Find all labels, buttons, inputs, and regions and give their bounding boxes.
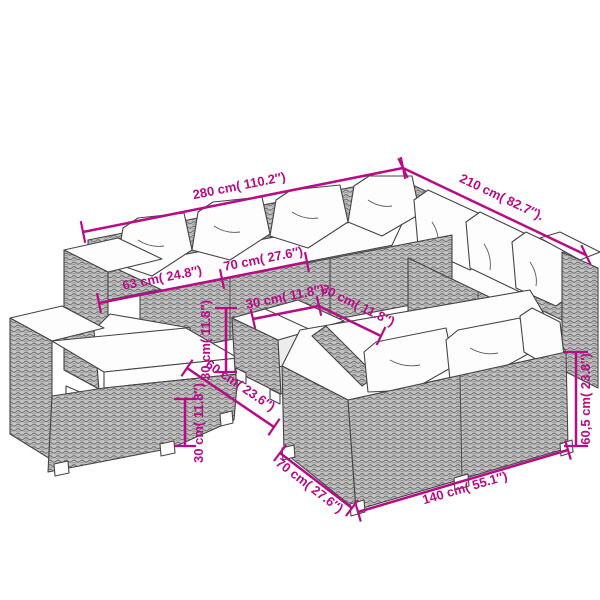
chair-base: [48, 374, 238, 472]
chair-foot: [160, 441, 175, 456]
chair-arm-front: [10, 318, 52, 460]
chair-foot: [54, 461, 69, 476]
furniture-dimension-sketch: 280 cm( 110.2″) 210 cm( 82.7″). 63 cm( 2…: [0, 0, 600, 600]
product-dimension-diagram: 280 cm( 110.2″) 210 cm( 82.7″). 63 cm( 2…: [0, 0, 600, 600]
chair-foot: [220, 411, 233, 426]
dim-seat-height-label: 30 cm( 11.8″): [191, 383, 206, 463]
dim-sofa-back-height-label: 60,5 cm( 23.8″): [578, 353, 593, 445]
dim-total-width-label: 280 cm( 110.2″): [191, 169, 287, 202]
